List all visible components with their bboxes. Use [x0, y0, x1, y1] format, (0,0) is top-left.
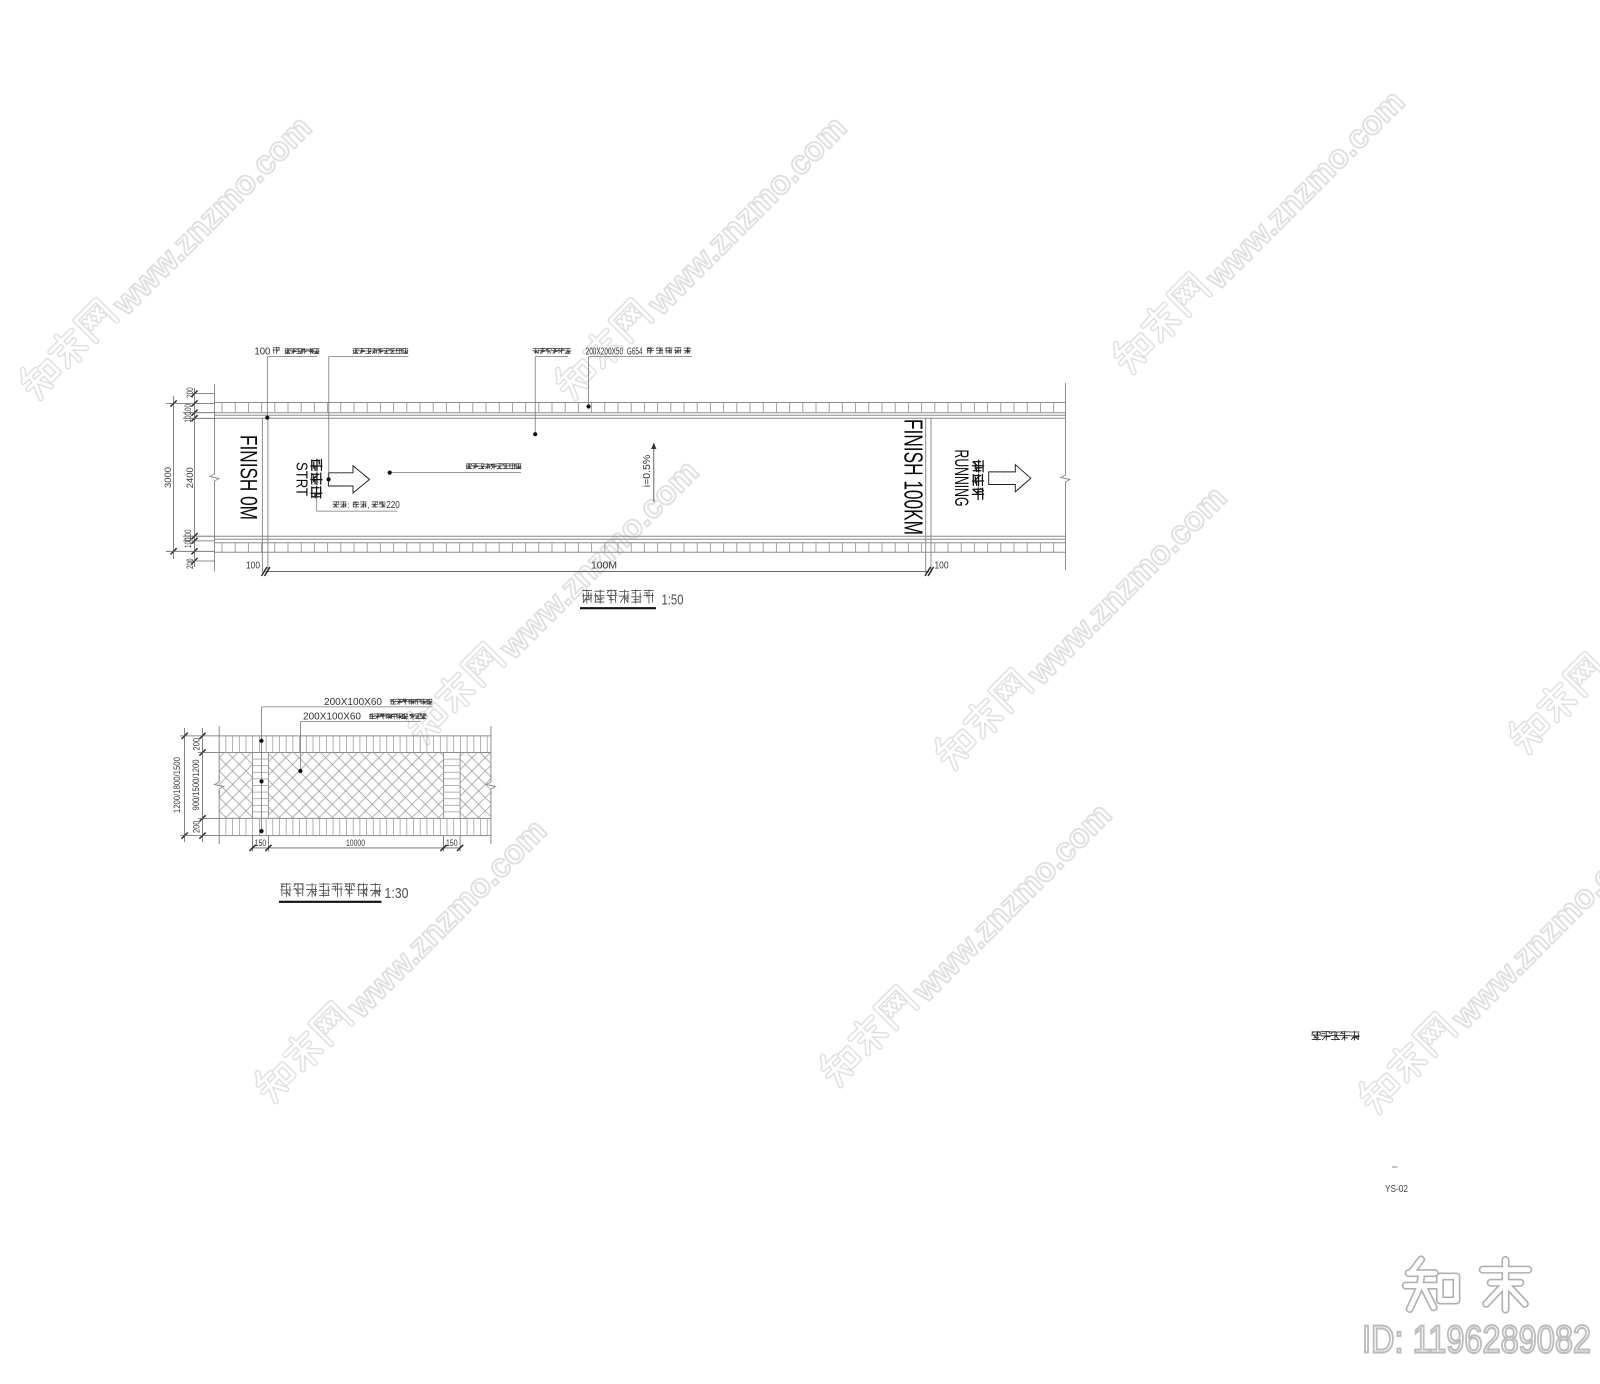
svg-text:100: 100 [183, 412, 193, 423]
svg-text:ID: 1196289082: ID: 1196289082 [1362, 1319, 1591, 1362]
svg-text:3000: 3000 [163, 467, 174, 488]
svg-text:900/1500/1200: 900/1500/1200 [191, 760, 202, 811]
svg-text:i=0.5%: i=0.5% [641, 455, 653, 487]
svg-text:100: 100 [254, 346, 270, 357]
svg-text:150: 150 [446, 838, 458, 849]
svg-text:100: 100 [183, 538, 193, 549]
svg-text:YS-02: YS-02 [1385, 1184, 1408, 1195]
svg-text:200: 200 [192, 738, 202, 751]
svg-text:200X200X50 G654: 200X200X50 G654 [586, 346, 643, 357]
svg-text:,: , [406, 715, 408, 722]
svg-text:1200/1800/1500: 1200/1800/1500 [172, 757, 183, 813]
svg-text:100M: 100M [591, 561, 617, 572]
svg-text:FINISH 0M: FINISH 0M [234, 435, 261, 520]
svg-text:STRT: STRT [292, 462, 309, 496]
svg-text:2400: 2400 [185, 467, 196, 488]
svg-text:1:30: 1:30 [385, 885, 409, 902]
svg-text::: : [348, 501, 350, 510]
svg-text:,: , [367, 501, 369, 510]
svg-text:200X100X60: 200X100X60 [324, 697, 382, 708]
svg-text:10000: 10000 [346, 838, 365, 849]
svg-text:200: 200 [185, 387, 195, 398]
svg-text:RUNNING: RUNNING [950, 450, 971, 507]
svg-text:100: 100 [246, 561, 260, 572]
svg-text:100: 100 [935, 561, 949, 572]
svg-text:150: 150 [255, 838, 267, 849]
svg-text:220: 220 [386, 500, 400, 511]
svg-text:1:50: 1:50 [662, 592, 684, 609]
svg-text:200: 200 [191, 821, 201, 834]
svg-text:200: 200 [185, 559, 195, 570]
svg-text:200X100X60: 200X100X60 [303, 712, 361, 723]
svg-text:FINISH 100KM: FINISH 100KM [898, 419, 926, 535]
